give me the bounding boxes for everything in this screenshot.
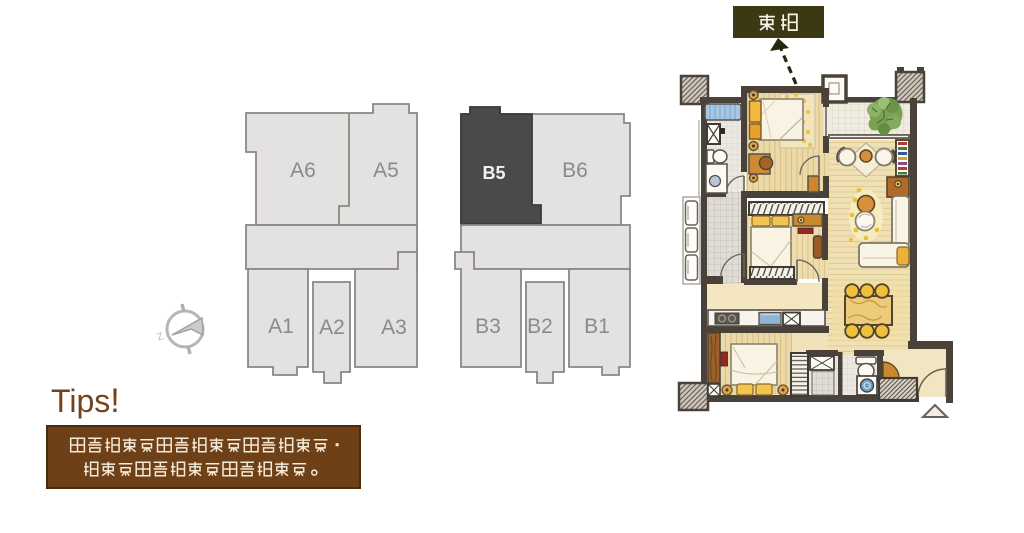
svg-text:B5: B5 [482,163,505,183]
svg-text:B2: B2 [527,315,553,338]
svg-text:B6: B6 [562,159,588,182]
svg-text:A1: A1 [268,315,294,338]
svg-text:Tips!: Tips! [51,382,120,420]
svg-text:A3: A3 [381,316,407,339]
svg-text:A2: A2 [319,316,345,339]
svg-text:z: z [154,326,166,343]
svg-text:B1: B1 [584,315,610,338]
svg-text:A5: A5 [373,159,399,182]
svg-text:A6: A6 [290,159,316,182]
svg-text:B3: B3 [475,315,501,338]
